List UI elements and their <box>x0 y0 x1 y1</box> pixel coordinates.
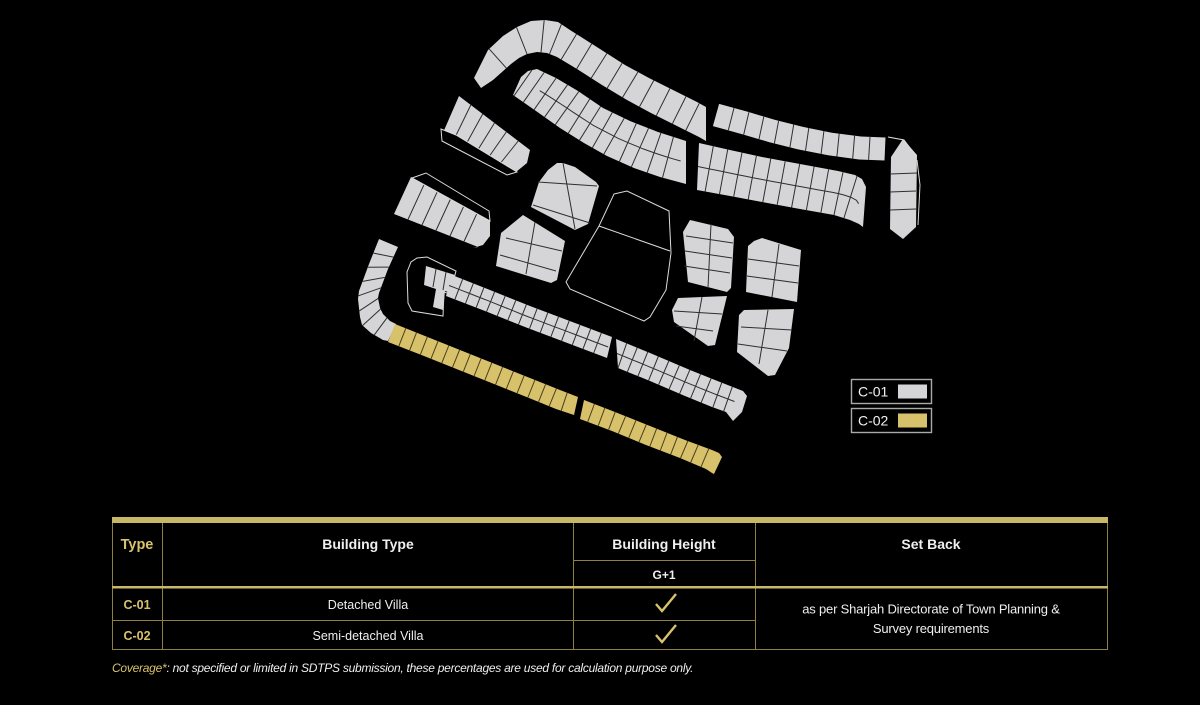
svg-text:C-02: C-02 <box>858 413 889 429</box>
svg-text:C-01: C-01 <box>858 384 889 400</box>
svg-text:C-02: C-02 <box>123 629 150 643</box>
svg-text:Set Back: Set Back <box>901 536 960 552</box>
svg-text:Coverage*: not specified or li: Coverage*: not specified or limited in S… <box>112 661 693 675</box>
svg-text:as per Sharjah Directorate of: as per Sharjah Directorate of Town Plann… <box>802 602 1060 617</box>
svg-text:Building Height: Building Height <box>612 536 716 552</box>
svg-text:Survey requirements: Survey requirements <box>873 621 990 636</box>
svg-text:Detached Villa: Detached Villa <box>328 598 408 612</box>
svg-text:C-01: C-01 <box>123 598 150 612</box>
svg-text:Semi-detached Villa: Semi-detached Villa <box>313 629 424 643</box>
svg-text:Type: Type <box>121 537 154 553</box>
svg-text:G+1: G+1 <box>652 568 675 582</box>
svg-text:Building Type: Building Type <box>322 536 414 552</box>
